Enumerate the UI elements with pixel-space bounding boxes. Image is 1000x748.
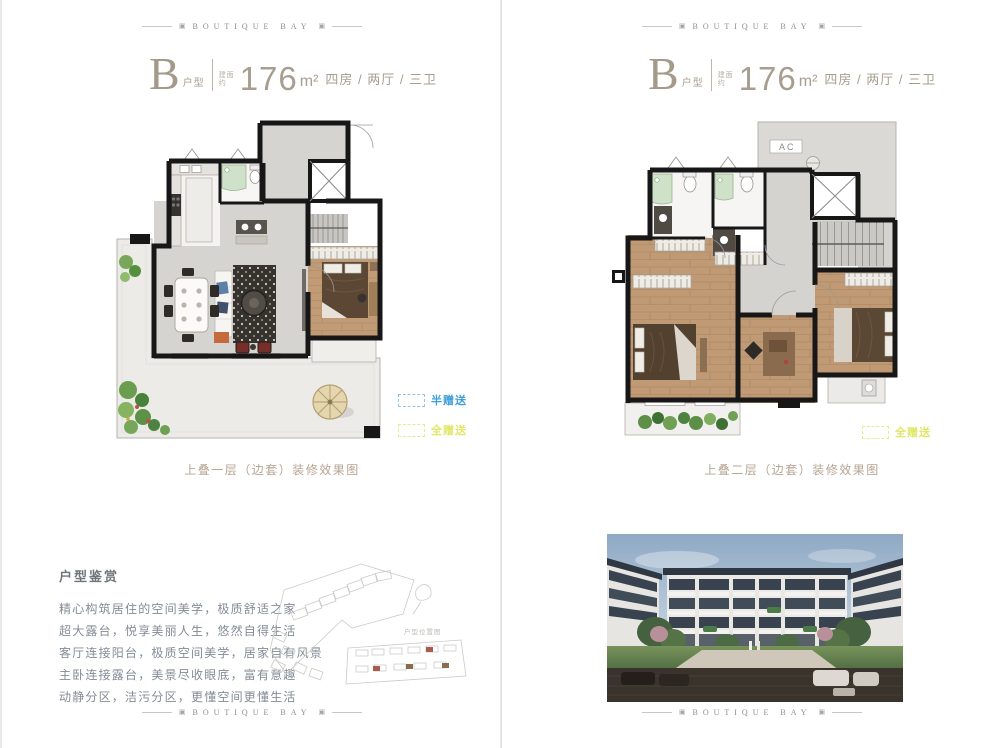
unit-type-letter: B [648,56,679,92]
rendering-photo-image [607,534,903,702]
unit-type-letter: B [149,56,180,92]
shower2 [715,174,733,200]
plan-legend: 半赠送 全赠送 [398,392,467,438]
bed-bench [700,338,707,372]
wardrobe [845,273,893,286]
armchair [258,342,271,353]
rendering-photo [607,534,903,702]
legend-swatch-dashed [862,426,889,439]
area-label-line2: 约 [718,80,734,88]
ornament-icon: ▣ [319,23,326,30]
floorplan-level1 [112,106,412,456]
laundry-balcony [828,375,885,403]
toilet2 [741,176,753,192]
ornament-line [142,712,172,713]
site-plan-drawing: 户型位置图 [256,552,478,706]
legend-full-bonus: 全赠送 [398,422,467,438]
plan-legend: 全赠送 [862,424,931,440]
ornament-line [642,712,672,713]
rooms-spec: 四房 / 两厅 / 三卫 [325,69,437,88]
unit-type-suffix: 户型 [183,74,205,89]
ornament-line [832,26,862,27]
footer-ornament: ▣ BOUTIQUE BAY ▣ [642,708,862,717]
ornament-icon: ▣ [179,23,186,30]
area-label-line2: 约 [219,80,235,88]
tv-console [302,269,306,331]
ornament-icon: ▣ [179,709,186,716]
ac-label: AC [779,142,796,152]
legend-swatch-dashed [398,424,425,437]
legend-swatch-dashed [398,394,425,407]
armchair [236,342,249,353]
ornament-line [832,712,862,713]
dining-table [175,278,208,332]
brand-name: BOUTIQUE BAY [192,22,311,31]
toilet1 [684,176,696,192]
rooms-spec: 四房 / 两厅 / 三卫 [824,69,936,88]
ornament-icon: ▣ [679,23,686,30]
leaf-sketch [413,584,431,614]
ornament-icon: ▣ [819,23,826,30]
brand-name: BOUTIQUE BAY [192,708,311,717]
page-floor2: ▣ BOUTIQUE BAY ▣ B 户型 建面 约 176 m² 四房 / 两… [502,0,1000,748]
brand-name: BOUTIQUE BAY [692,22,811,31]
plan-caption: 上叠二层（边套）装修效果图 [632,461,952,478]
ornament-icon: ▣ [319,709,326,716]
legend-full-bonus: 全赠送 [862,424,931,440]
legend-label: 全赠送 [895,424,931,440]
floorplan-level2-drawing: AC [600,110,910,450]
brochure-sheet: ▣ BOUTIQUE BAY ▣ B 户型 建面 约 176 m² 四房 / 两… [0,0,1000,748]
area-unit: m² [799,73,818,91]
entry-door-arc [350,125,373,148]
unit-title: B 户型 建面 约 176 m² 四房 / 两厅 / 三卫 [648,56,936,92]
header-ornament: ▣ BOUTIQUE BAY ▣ [142,22,362,31]
ornament-icon: ▣ [679,709,686,716]
area-number: 176 [240,65,298,92]
desk [763,332,795,376]
legend-label: 半赠送 [431,392,467,408]
kitchen-island [186,178,212,242]
legend-half-bonus: 半赠送 [398,392,467,408]
ornament-line [142,26,172,27]
area-number: 176 [739,65,797,92]
plan-caption: 上叠一层（边套）装修效果图 [112,461,432,478]
unit-type-suffix: 户型 [682,74,704,89]
building-footprints [271,570,392,679]
site-plan: 户型位置图 [256,552,478,706]
footer-ornament: ▣ BOUTIQUE BAY ▣ [142,708,362,717]
header-ornament: ▣ BOUTIQUE BAY ▣ [642,22,862,31]
area-unit: m² [300,73,319,91]
desk [369,282,378,316]
ornament-line [332,712,362,713]
legend-label: 全赠送 [431,422,467,438]
plaza [673,650,839,670]
page-floor1: ▣ BOUTIQUE BAY ▣ B 户型 建面 约 176 m² 四房 / 两… [2,0,502,748]
brand-name: BOUTIQUE BAY [692,708,811,717]
ornament-line [642,26,672,27]
wardrobe [308,247,379,259]
unit-title: B 户型 建面 约 176 m² 四房 / 两厅 / 三卫 [149,56,437,92]
wardrobe [633,275,691,288]
vanity [236,220,267,234]
toilet [250,171,260,184]
title-divider [212,59,213,91]
hall-floor [765,170,815,265]
bedroom-balcony [312,340,376,362]
ornament-line [332,26,362,27]
title-divider [711,59,712,91]
area-label: 建面 约 [219,72,235,89]
ornament-icon: ▣ [819,709,826,716]
area-label: 建面 约 [718,72,734,89]
site-plan-label: 户型位置图 [404,627,442,636]
floorplan-level2: AC [600,110,910,450]
floorplan-level1-drawing [112,106,412,456]
